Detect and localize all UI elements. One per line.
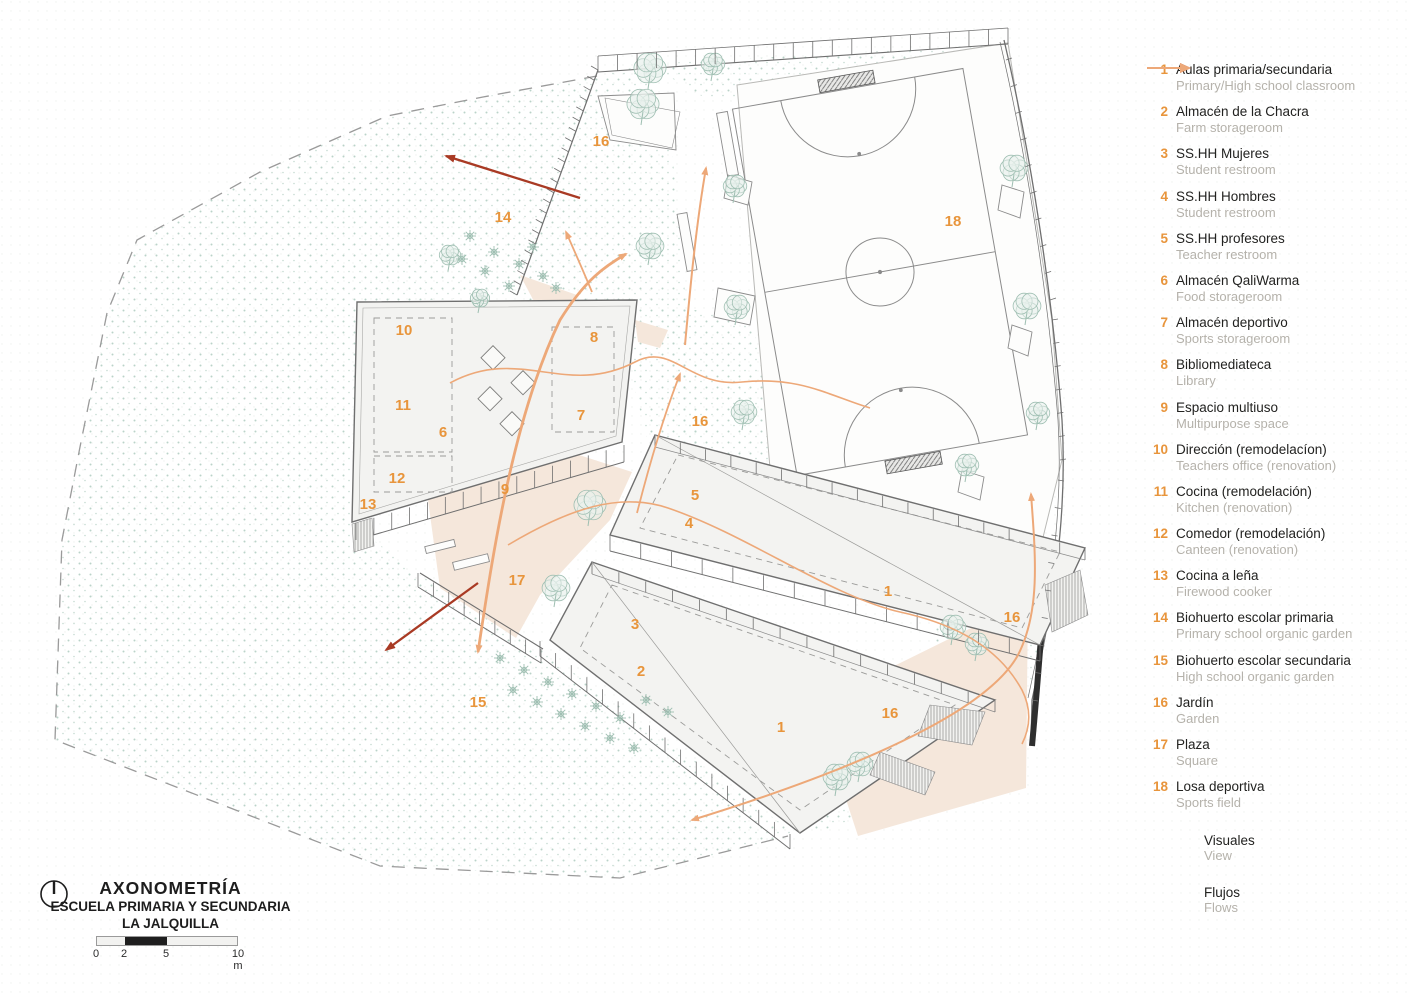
legend-item-subtitle: Firewood cooker — [1176, 584, 1272, 600]
legend-item-subtitle: Food storageroom — [1176, 289, 1299, 305]
legend-item-number: 17 — [1146, 737, 1168, 769]
shrub-icon — [628, 742, 640, 754]
legend-item-8: 8BibliomediatecaLibrary — [1146, 357, 1408, 389]
legend-item-title: Losa deportiva — [1176, 779, 1265, 795]
plan-label-2: 2 — [637, 663, 645, 680]
plan-label-17: 17 — [509, 572, 526, 589]
scale-tick-2: 2 — [121, 948, 127, 960]
legend-item-title: Biohuerto escolar primaria — [1176, 610, 1352, 626]
legend-item-subtitle: Canteen (renovation) — [1176, 542, 1325, 558]
legend-item-number: 6 — [1146, 273, 1168, 305]
title-block: AXONOMETRÍA ESCUELA PRIMARIA Y SECUNDARI… — [38, 878, 303, 932]
plan-label-8: 8 — [590, 329, 598, 346]
shrub-icon — [456, 253, 468, 265]
legend-item-title: Dirección (remodelacíon) — [1176, 442, 1336, 458]
shrub-icon — [542, 676, 554, 688]
plan-label-3: 3 — [631, 616, 639, 633]
legend-item-11: 11Cocina (remodelación)Kitchen (renovati… — [1146, 484, 1408, 516]
legend-item-7: 7Almacén deportivoSports storageroom — [1146, 315, 1408, 347]
plan-label-5: 5 — [691, 487, 699, 504]
legend-item-number: 18 — [1146, 779, 1168, 811]
legend-panel: 1Aulas primaria/secundariaPrimary/High s… — [1146, 62, 1408, 919]
plan-label-15: 15 — [470, 694, 487, 711]
legend-item-16: 16JardínGarden — [1146, 695, 1408, 727]
flujos-arrow-icon — [1146, 885, 1192, 915]
legend-item-subtitle: Teachers office (renovation) — [1176, 458, 1336, 474]
legend-item-title: Almacén deportivo — [1176, 315, 1290, 331]
legend-item-number: 15 — [1146, 653, 1168, 685]
legend-item-2: 2Almacén de la ChacraFarm storageroom — [1146, 104, 1408, 136]
shrub-icon — [662, 706, 674, 718]
north-arrow-icon — [38, 878, 70, 910]
legend-item-title: Cocina a leña — [1176, 568, 1272, 584]
legend-item-number: 8 — [1146, 357, 1168, 389]
legend-item-number: 10 — [1146, 442, 1168, 474]
legend-item-title: Almacén de la Chacra — [1176, 104, 1309, 120]
legend-arrow-label: Flujos — [1204, 885, 1240, 900]
shrub-icon — [579, 720, 591, 732]
legend-arrow-sublabel: Flows — [1204, 900, 1240, 915]
shrub-icon — [604, 732, 616, 744]
legend-item-number: 12 — [1146, 526, 1168, 558]
plan-label-12: 12 — [389, 470, 406, 487]
scale-tick-5: 5 — [163, 948, 169, 960]
legend-item-subtitle: Sports field — [1176, 795, 1265, 811]
shrub-icon — [614, 712, 626, 724]
legend-item-number: 7 — [1146, 315, 1168, 347]
legend-item-number: 11 — [1146, 484, 1168, 516]
legend-item-subtitle: Square — [1176, 753, 1218, 769]
axonometric-drawing-sheet: 1614181081176161291354171316215161 AXONO… — [0, 0, 1414, 1000]
shrub-icon — [464, 230, 476, 242]
legend-item-title: Plaza — [1176, 737, 1218, 753]
legend-item-title: SS.HH profesores — [1176, 231, 1285, 247]
legend-item-title: SS.HH Mujeres — [1176, 146, 1276, 162]
plan-label-7: 7 — [577, 407, 585, 424]
legend-item-10: 10Dirección (remodelacíon)Teachers offic… — [1146, 442, 1408, 474]
plan-label-16: 16 — [593, 133, 610, 150]
legend-item-number: 9 — [1146, 400, 1168, 432]
legend-item-number: 2 — [1146, 104, 1168, 136]
shrub-icon — [503, 280, 515, 292]
legend-arrow-visuales: VisualesView — [1146, 833, 1408, 863]
legend-item-title: Comedor (remodelación) — [1176, 526, 1325, 542]
legend-item-title: Aulas primaria/secundaria — [1176, 62, 1355, 78]
legend-item-number: 16 — [1146, 695, 1168, 727]
legend-item-3: 3SS.HH MujeresStudent restroom — [1146, 146, 1408, 178]
legend-item-subtitle: High school organic garden — [1176, 669, 1351, 685]
legend-item-number: 14 — [1146, 610, 1168, 642]
legend-item-title: Bibliomediateca — [1176, 357, 1271, 373]
plan-label-6: 6 — [439, 424, 447, 441]
legend-item-subtitle: Farm storageroom — [1176, 120, 1309, 136]
legend-arrow-sublabel: View — [1204, 848, 1255, 863]
legend-item-title: Jardín — [1176, 695, 1219, 711]
scale-tick-0: 0 — [93, 948, 99, 960]
legend-item-number: 4 — [1146, 189, 1168, 221]
shrub-icon — [518, 664, 530, 676]
legend-item-subtitle: Student restroom — [1176, 162, 1276, 178]
drawing-subtitle: ESCUELA PRIMARIA Y SECUNDARIA — [38, 898, 303, 915]
gable-louver — [352, 518, 374, 552]
plan-label-9: 9 — [501, 481, 509, 498]
legend-item-number: 5 — [1146, 231, 1168, 263]
legend-item-18: 18Losa deportivaSports field — [1146, 779, 1408, 811]
plan-label-14: 14 — [495, 209, 512, 226]
shrub-icon — [488, 246, 500, 258]
drawing-title: AXONOMETRÍA — [38, 878, 303, 898]
legend-item-12: 12Comedor (remodelación)Canteen (renovat… — [1146, 526, 1408, 558]
legend-item-subtitle: Primary/High school classroom — [1176, 78, 1355, 94]
shrub-icon — [507, 684, 519, 696]
shrub-icon — [566, 688, 578, 700]
shrub-icon — [640, 694, 652, 706]
plan-label-16: 16 — [1004, 609, 1021, 626]
plan-label-1: 1 — [884, 583, 892, 600]
legend-item-17: 17PlazaSquare — [1146, 737, 1408, 769]
legend-item-subtitle: Teacher restroom — [1176, 247, 1285, 263]
shrub-icon — [531, 696, 543, 708]
legend-item-subtitle: Kitchen (renovation) — [1176, 500, 1312, 516]
legend-item-6: 6Almacén QaliWarmaFood storageroom — [1146, 273, 1408, 305]
legend-item-title: SS.HH Hombres — [1176, 189, 1276, 205]
legend-item-title: Cocina (remodelación) — [1176, 484, 1312, 500]
scale-bar — [96, 936, 238, 946]
legend-arrow-label: Visuales — [1204, 833, 1255, 848]
shrub-icon — [590, 700, 602, 712]
legend-item-subtitle: Primary school organic garden — [1176, 626, 1352, 642]
plan-label-16: 16 — [882, 705, 899, 722]
shrub-icon — [555, 708, 567, 720]
legend-arrow-flujos: FlujosFlows — [1146, 885, 1408, 915]
legend-item-subtitle: Garden — [1176, 711, 1219, 727]
plan-label-1: 1 — [777, 719, 785, 736]
shrub-icon — [537, 270, 549, 282]
plan-label-18: 18 — [945, 213, 962, 230]
legend-item-15: 15Biohuerto escolar secundariaHigh schoo… — [1146, 653, 1408, 685]
legend-item-13: 13Cocina a leñaFirewood cooker — [1146, 568, 1408, 600]
shrub-icon — [479, 265, 491, 277]
legend-item-9: 9Espacio multiusoMultipurpose space — [1146, 400, 1408, 432]
legend-item-subtitle: Sports storageroom — [1176, 331, 1290, 347]
legend-item-title: Almacén QaliWarma — [1176, 273, 1299, 289]
plan-label-13: 13 — [360, 496, 377, 513]
legend-item-14: 14Biohuerto escolar primariaPrimary scho… — [1146, 610, 1408, 642]
plan-label-4: 4 — [685, 515, 694, 532]
scale-labels: 0 2 5 10 m — [96, 948, 246, 962]
legend-item-5: 5SS.HH profesoresTeacher restroom — [1146, 231, 1408, 263]
drawing-subtitle2: LA JALQUILLA — [38, 915, 303, 932]
scale-tick-10: 10 m — [232, 948, 244, 972]
shrub-icon — [494, 652, 506, 664]
legend-arrows: VisualesViewFlujosFlows — [1146, 833, 1408, 915]
shrub-icon — [513, 258, 525, 270]
legend-item-number: 3 — [1146, 146, 1168, 178]
plan-label-16: 16 — [692, 413, 709, 430]
plan-label-10: 10 — [396, 322, 413, 339]
legend-list: 1Aulas primaria/secundariaPrimary/High s… — [1146, 62, 1408, 811]
legend-item-number: 13 — [1146, 568, 1168, 600]
visuales-arrow-icon — [1146, 833, 1192, 863]
plan-label-11: 11 — [395, 397, 411, 414]
legend-item-subtitle: Student restroom — [1176, 205, 1276, 221]
legend-item-title: Biohuerto escolar secundaria — [1176, 653, 1351, 669]
shrub-icon — [550, 282, 562, 294]
legend-item-4: 4SS.HH HombresStudent restroom — [1146, 189, 1408, 221]
legend-item-subtitle: Library — [1176, 373, 1271, 389]
legend-item-subtitle: Multipurpose space — [1176, 416, 1289, 432]
legend-item-title: Espacio multiuso — [1176, 400, 1289, 416]
